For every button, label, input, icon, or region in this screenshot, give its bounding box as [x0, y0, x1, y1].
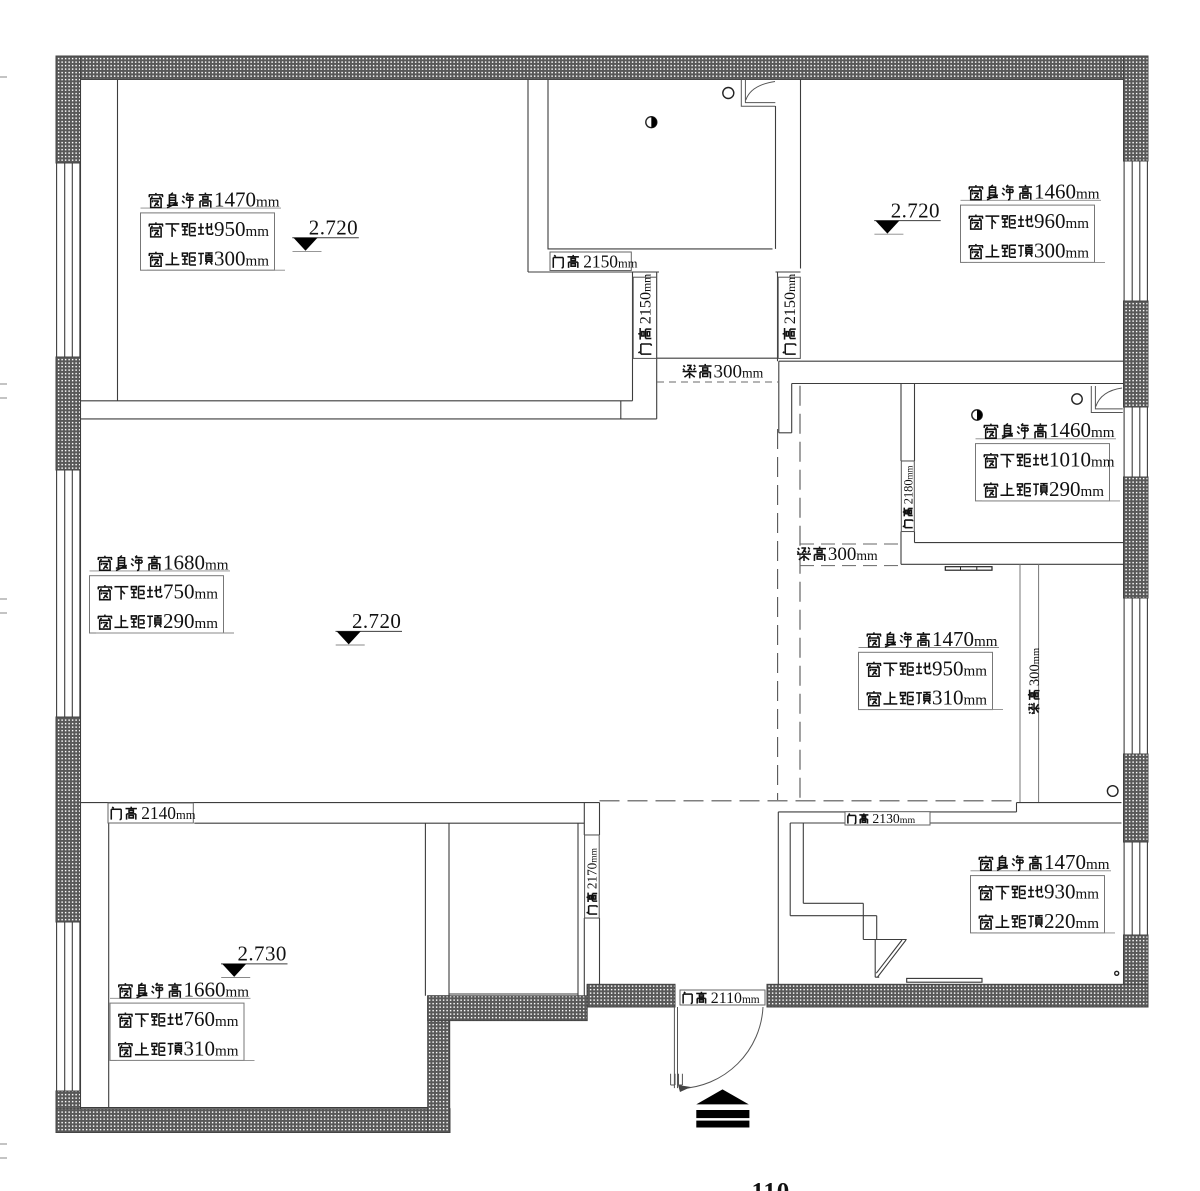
svg-text:2.720: 2.720: [352, 609, 401, 633]
svg-text:300mm: 300mm: [828, 544, 878, 565]
svg-text:300mm: 300mm: [714, 361, 764, 382]
svg-text:2.730: 2.730: [238, 942, 287, 966]
svg-text:2.720: 2.720: [309, 216, 358, 240]
svg-text:2180mm: 2180mm: [901, 466, 915, 505]
svg-text:2.720: 2.720: [891, 198, 940, 222]
svg-text:110: 110: [752, 1179, 791, 1191]
